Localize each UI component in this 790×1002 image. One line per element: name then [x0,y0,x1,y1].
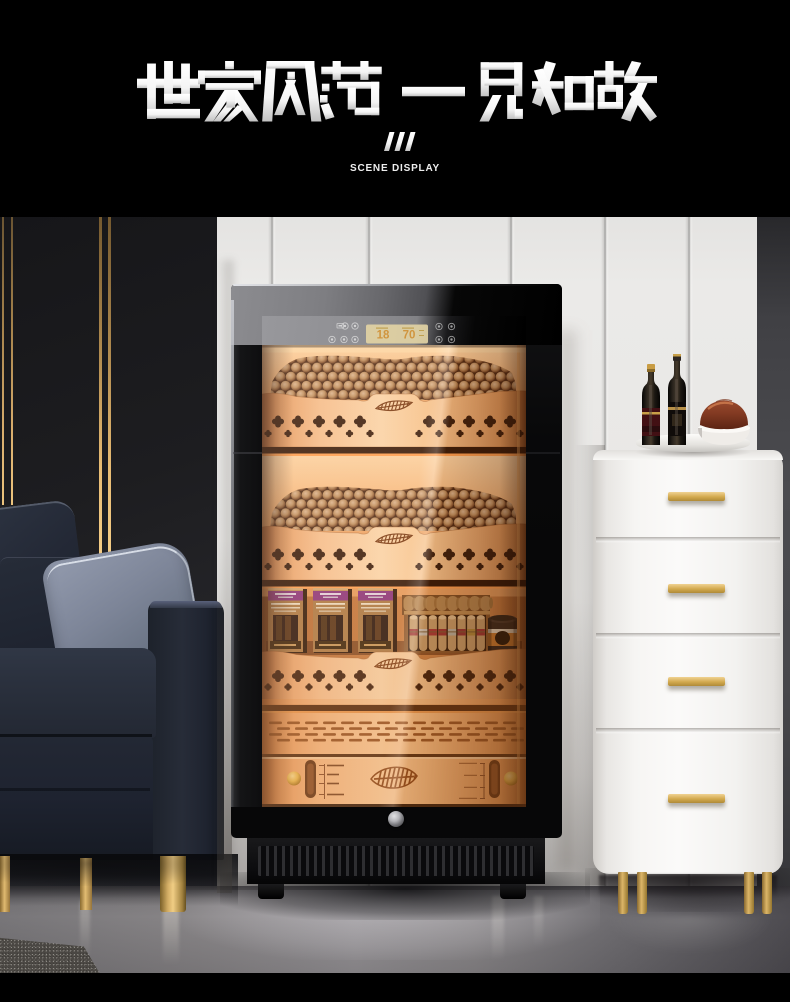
svg-text:70: 70 [403,330,416,342]
svg-text:18: 18 [377,330,390,342]
